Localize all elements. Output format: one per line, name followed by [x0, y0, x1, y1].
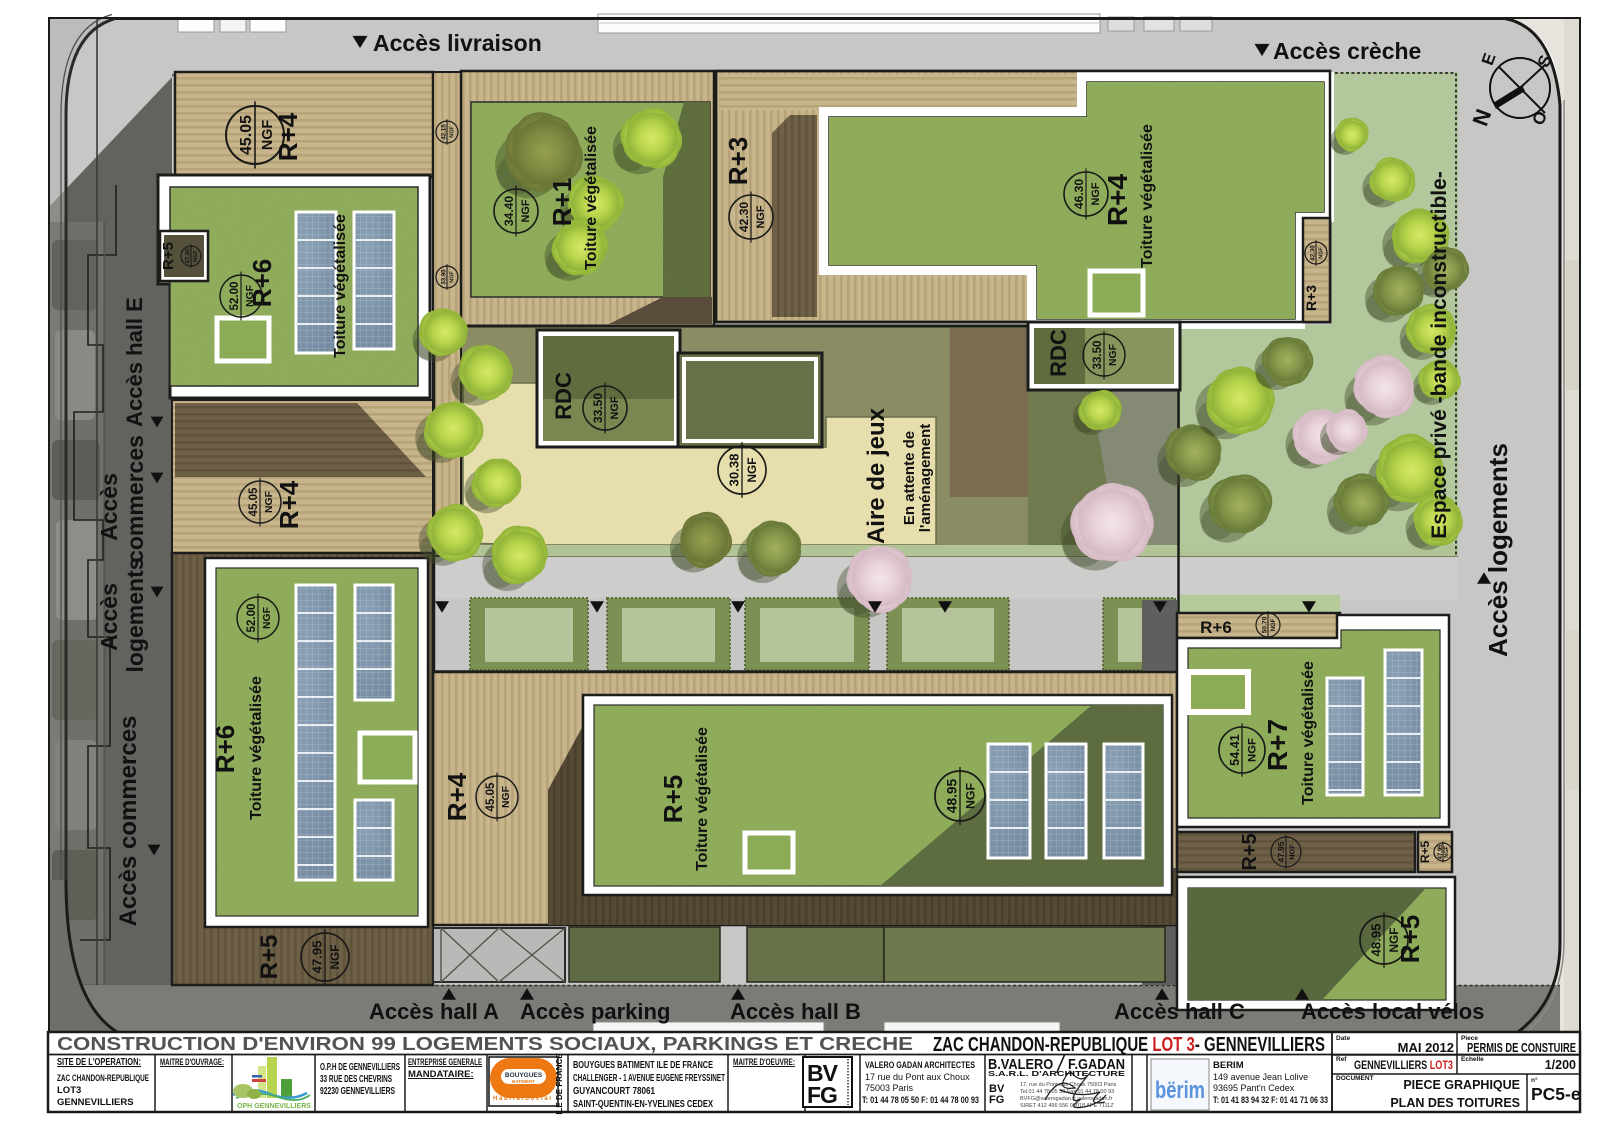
svg-text:Espace privé -bande inconstru: Espace privé -bande inconstructible-	[1428, 171, 1451, 539]
svg-text:54.41: 54.41	[1228, 734, 1242, 766]
svg-text:SIRET 412 496 556 00018 APE 7: SIRET 412 496 556 00018 APE 7111Z	[1020, 1103, 1114, 1109]
svg-text:Accès commerces: Accès commerces	[115, 716, 142, 927]
svg-text:Accès hall A: Accès hall A	[369, 999, 499, 1024]
svg-text:CONSTRUCTION D'ENVIRON 99 LOGE: CONSTRUCTION D'ENVIRON 99 LOGEMENTS SOCI…	[57, 1034, 913, 1054]
svg-text:R+4: R+4	[442, 772, 472, 821]
svg-text:R+4: R+4	[274, 480, 304, 529]
svg-text:PERMIS DE CONSTUIRE: PERMIS DE CONSTUIRE	[1467, 1040, 1576, 1055]
svg-text:47.50: 47.50	[186, 248, 192, 264]
svg-text:MANDATAIRE:: MANDATAIRE:	[408, 1069, 474, 1080]
svg-text:Ref: Ref	[1336, 1056, 1347, 1063]
svg-text:17 rue du Pont aux Choux: 17 rue du Pont aux Choux	[865, 1072, 970, 1082]
svg-text:n°: n°	[1531, 1076, 1538, 1084]
svg-text:RDC: RDC	[1046, 329, 1071, 377]
svg-text:NGF: NGF	[1444, 846, 1450, 858]
svg-text:NGF: NGF	[501, 786, 512, 808]
svg-text:Echelle: Echelle	[1461, 1056, 1484, 1063]
svg-text:MAI 2012: MAI 2012	[1398, 1040, 1454, 1055]
svg-text:RDC: RDC	[551, 372, 576, 420]
svg-text:NGF: NGF	[449, 271, 455, 283]
svg-text:Accès: Accès	[96, 583, 122, 651]
svg-text:Accès parking: Accès parking	[520, 999, 670, 1024]
svg-text:50.70: 50.70	[1261, 616, 1268, 633]
svg-text:NGF: NGF	[1246, 738, 1258, 762]
svg-text:Aire de jeux: Aire de jeux	[863, 407, 890, 544]
svg-text:logements: logements	[122, 557, 148, 672]
svg-text:R+5: R+5	[160, 242, 177, 270]
svg-text:33 RUE DES CHEVRINS: 33 RUE DES CHEVRINS	[320, 1074, 392, 1085]
svg-text:En attente de: En attente de	[901, 431, 918, 525]
svg-text:OPH GENNEVILLIERS: OPH GENNEVILLIERS	[237, 1101, 311, 1110]
svg-text:Toiture végétalisée: Toiture végétalisée	[332, 214, 349, 358]
svg-text:Accès livraison: Accès livraison	[373, 30, 542, 56]
svg-text:33.50: 33.50	[1092, 341, 1104, 370]
svg-text:VALERO GADAN ARCHITECTES: VALERO GADAN ARCHITECTES	[865, 1060, 975, 1071]
svg-text:GENNEVILLIERS LOT3: GENNEVILLIERS LOT3	[1354, 1058, 1453, 1072]
svg-text:l'aménagement: l'aménagement	[917, 424, 934, 533]
svg-text:NGF: NGF	[1090, 182, 1102, 205]
svg-text:NGF: NGF	[1288, 844, 1297, 860]
svg-text:47.95: 47.95	[310, 940, 325, 973]
svg-text:LOT3: LOT3	[57, 1085, 81, 1096]
svg-text:Accès logements: Accès logements	[1483, 443, 1513, 657]
svg-text:GUYANCOURT 78061: GUYANCOURT 78061	[573, 1086, 655, 1097]
svg-text:SITE DE L'OPERATION:: SITE DE L'OPERATION:	[57, 1056, 141, 1068]
svg-text:R+6: R+6	[1200, 618, 1232, 637]
svg-text:DOCUMENT: DOCUMENT	[1336, 1075, 1374, 1082]
svg-text:PC5-e: PC5-e	[1531, 1084, 1581, 1104]
svg-text:48.95: 48.95	[1369, 923, 1384, 956]
svg-text:R+6: R+6	[247, 259, 277, 307]
svg-text:NGF: NGF	[328, 944, 342, 969]
svg-text:R+5: R+5	[1239, 833, 1261, 870]
svg-text:Accès hall B: Accès hall B	[730, 999, 861, 1024]
svg-text:Toiture végétalisée: Toiture végétalisée	[1300, 661, 1317, 805]
svg-text:1/200: 1/200	[1545, 1058, 1576, 1072]
svg-text:Accès: Accès	[96, 473, 122, 541]
svg-text:R+3: R+3	[1303, 285, 1319, 311]
svg-text:NGF: NGF	[1271, 618, 1277, 631]
svg-text:R+7: R+7	[1262, 719, 1293, 771]
svg-text:bërim: bërim	[1155, 1077, 1205, 1104]
svg-text:52.00: 52.00	[246, 604, 258, 633]
svg-text:R+5: R+5	[1418, 841, 1432, 864]
svg-text:33.50: 33.50	[591, 393, 605, 424]
svg-text:T: 01 44 78 05 50 F: 01 44 78: T: 01 44 78 05 50 F: 01 44 78 00 93	[862, 1095, 979, 1105]
svg-text:ZAC CHANDON-REPUBLIQUE: ZAC CHANDON-REPUBLIQUE	[57, 1073, 149, 1084]
svg-text:NGF: NGF	[1108, 344, 1119, 366]
svg-text:45.05: 45.05	[238, 115, 255, 155]
svg-text:48.95: 48.95	[945, 778, 960, 813]
svg-text:Toiture végétalisée: Toiture végétalisée	[583, 126, 600, 270]
svg-text:MAITRE D'OUVRAGE:: MAITRE D'OUVRAGE:	[160, 1057, 224, 1068]
svg-text:NGF: NGF	[193, 250, 199, 262]
svg-text:ZAC CHANDON-REPUBLIQUE LOT 3-: ZAC CHANDON-REPUBLIQUE LOT 3- GENNEVILLI…	[933, 1034, 1325, 1056]
svg-text:Toiture végétalisée: Toiture végétalisée	[694, 727, 711, 871]
svg-text:ILE DE FRANCE: ILE DE FRANCE	[555, 1053, 564, 1115]
svg-text:52.00: 52.00	[229, 282, 241, 311]
svg-text:BERIM: BERIM	[1213, 1060, 1244, 1071]
svg-text:Toiture végétalisée: Toiture végétalisée	[1139, 124, 1156, 268]
svg-text:Accès hall E: Accès hall E	[122, 297, 147, 427]
svg-text:Date: Date	[1336, 1035, 1350, 1042]
svg-text:149 avenue Jean Lolive: 149 avenue Jean Lolive	[1213, 1072, 1308, 1082]
svg-text:R+4: R+4	[1102, 174, 1133, 227]
svg-text:FG: FG	[989, 1094, 1004, 1106]
svg-text:GENNEVILLIERS: GENNEVILLIERS	[57, 1097, 134, 1108]
svg-text:commerces: commerces	[122, 435, 148, 563]
svg-text:Accès crèche: Accès crèche	[1273, 38, 1421, 64]
svg-text:T: 01 41 83 94 32 F: 01 41 71: T: 01 41 83 94 32 F: 01 41 71 06 33	[1213, 1095, 1328, 1105]
svg-text:NGF: NGF	[609, 396, 621, 419]
svg-text:45.05: 45.05	[485, 782, 497, 811]
svg-text:H a b i t a t S o c i a l: H a b i t a t S o c i a l	[493, 1095, 551, 1102]
svg-text:BOUYGUES BATIMENT ILE DE FRANC: BOUYGUES BATIMENT ILE DE FRANCE	[573, 1060, 713, 1071]
svg-text:33.90: 33.90	[441, 269, 447, 285]
svg-text:NGF: NGF	[262, 607, 273, 629]
svg-text:42.30: 42.30	[1310, 245, 1316, 261]
svg-text:47.95: 47.95	[1277, 841, 1286, 862]
svg-text:SAINT-QUENTIN-EN-YVELINES CEDE: SAINT-QUENTIN-EN-YVELINES CEDEX	[573, 1099, 713, 1110]
svg-text:30.38: 30.38	[727, 453, 742, 486]
svg-text:CHALLENGER - 1 AVENUE EUGENE F: CHALLENGER - 1 AVENUE EUGENE FREYSSINET	[573, 1073, 725, 1084]
svg-text:34.40: 34.40	[502, 196, 516, 227]
svg-text:17, rue du Pont aux Choux 750: 17, rue du Pont aux Choux 75003 Paris	[1020, 1082, 1117, 1088]
svg-text:75003 Paris: 75003 Paris	[865, 1083, 914, 1093]
svg-text:NGF: NGF	[520, 199, 532, 222]
svg-text:92230 GENNEVILLIERS: 92230 GENNEVILLIERS	[320, 1086, 395, 1097]
svg-text:Accès local vélos: Accès local vélos	[1301, 999, 1484, 1024]
svg-text:PLAN DES TOITURES: PLAN DES TOITURES	[1390, 1096, 1520, 1110]
svg-text:FG: FG	[807, 1082, 837, 1108]
svg-text:45.05: 45.05	[248, 487, 260, 516]
svg-text:MAITRE D'OEUVRE:: MAITRE D'OEUVRE:	[733, 1057, 795, 1068]
svg-text:93695 Pant'n Cedex: 93695 Pant'n Cedex	[1213, 1083, 1295, 1093]
svg-text:S.A.R.L. D'ARCHITECTURE: S.A.R.L. D'ARCHITECTURE	[988, 1069, 1125, 1078]
svg-text:R+5: R+5	[256, 935, 283, 980]
svg-text:46.30: 46.30	[1072, 179, 1086, 210]
svg-text:NGF: NGF	[964, 783, 978, 810]
svg-text:R+3: R+3	[723, 137, 753, 185]
svg-text:ENTREPRISE GENERALE: ENTREPRISE GENERALE	[408, 1057, 482, 1068]
svg-text:BOUYGUES: BOUYGUES	[505, 1072, 543, 1079]
svg-text:NGF: NGF	[1318, 247, 1324, 259]
svg-text:BATIMENT: BATIMENT	[512, 1079, 535, 1084]
svg-text:NGF: NGF	[449, 126, 455, 138]
svg-text:O.P.H DE GENNEVILLIERS: O.P.H DE GENNEVILLIERS	[320, 1062, 400, 1073]
svg-text:R+4: R+4	[273, 112, 303, 161]
svg-text:R+5: R+5	[1395, 915, 1425, 963]
svg-text:R+6: R+6	[210, 725, 240, 773]
svg-text:NGF: NGF	[755, 205, 767, 228]
svg-text:R+1: R+1	[547, 178, 577, 226]
svg-text:47.95: 47.95	[1438, 844, 1444, 860]
svg-text:42.15: 42.15	[441, 124, 447, 140]
svg-text:PIECE GRAPHIQUE: PIECE GRAPHIQUE	[1403, 1078, 1520, 1092]
svg-text:Toiture végétalisée: Toiture végétalisée	[248, 676, 265, 820]
svg-text:NGF: NGF	[745, 457, 759, 482]
svg-text:42.30: 42.30	[737, 202, 751, 233]
svg-text:R+5: R+5	[658, 775, 688, 823]
svg-text:Accès hall C: Accès hall C	[1114, 999, 1245, 1024]
